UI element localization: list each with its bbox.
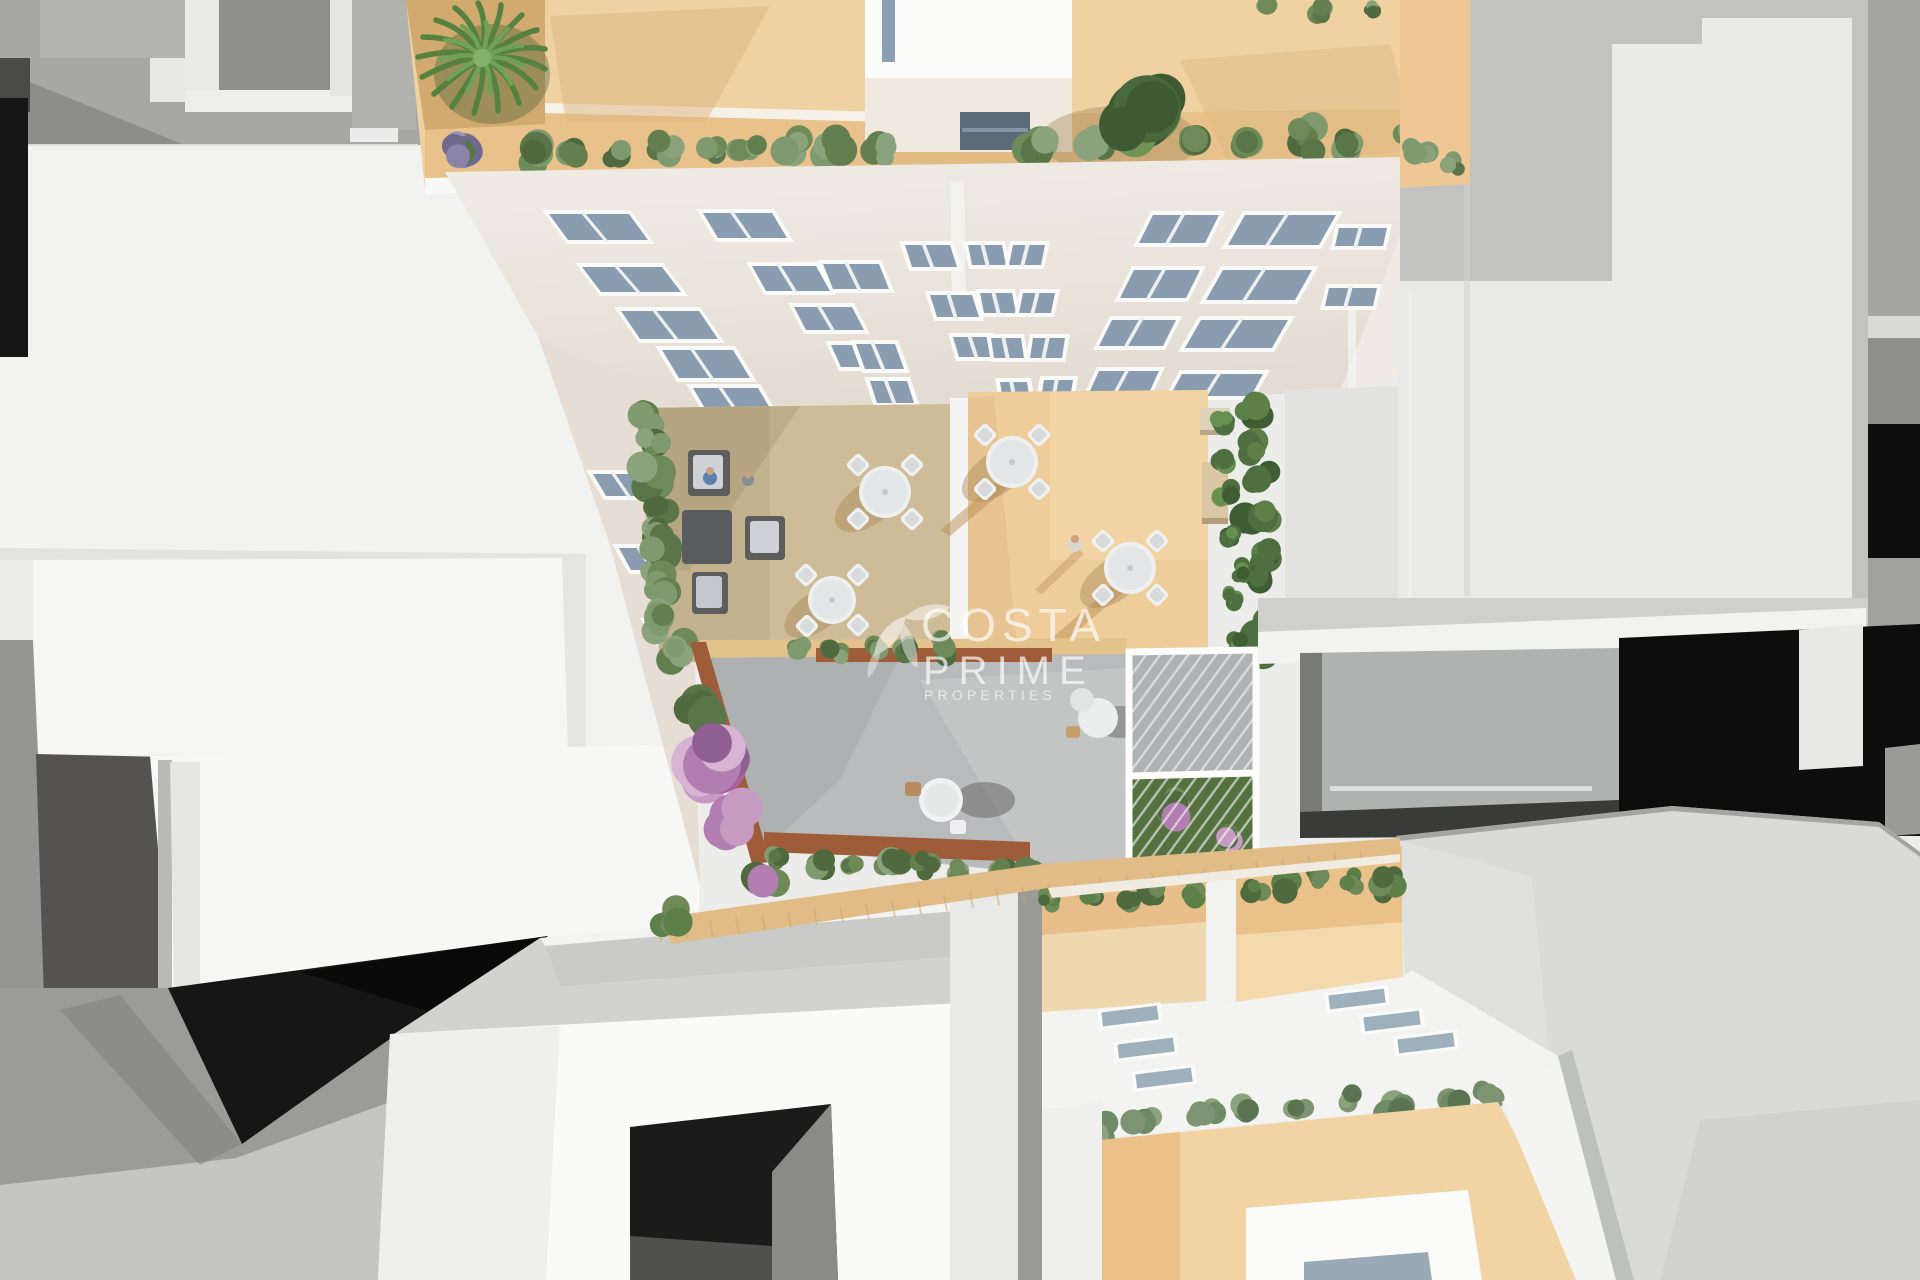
svg-text:COSTA: COSTA (921, 599, 1106, 651)
svg-text:PROPERTIES: PROPERTIES (924, 687, 1056, 703)
